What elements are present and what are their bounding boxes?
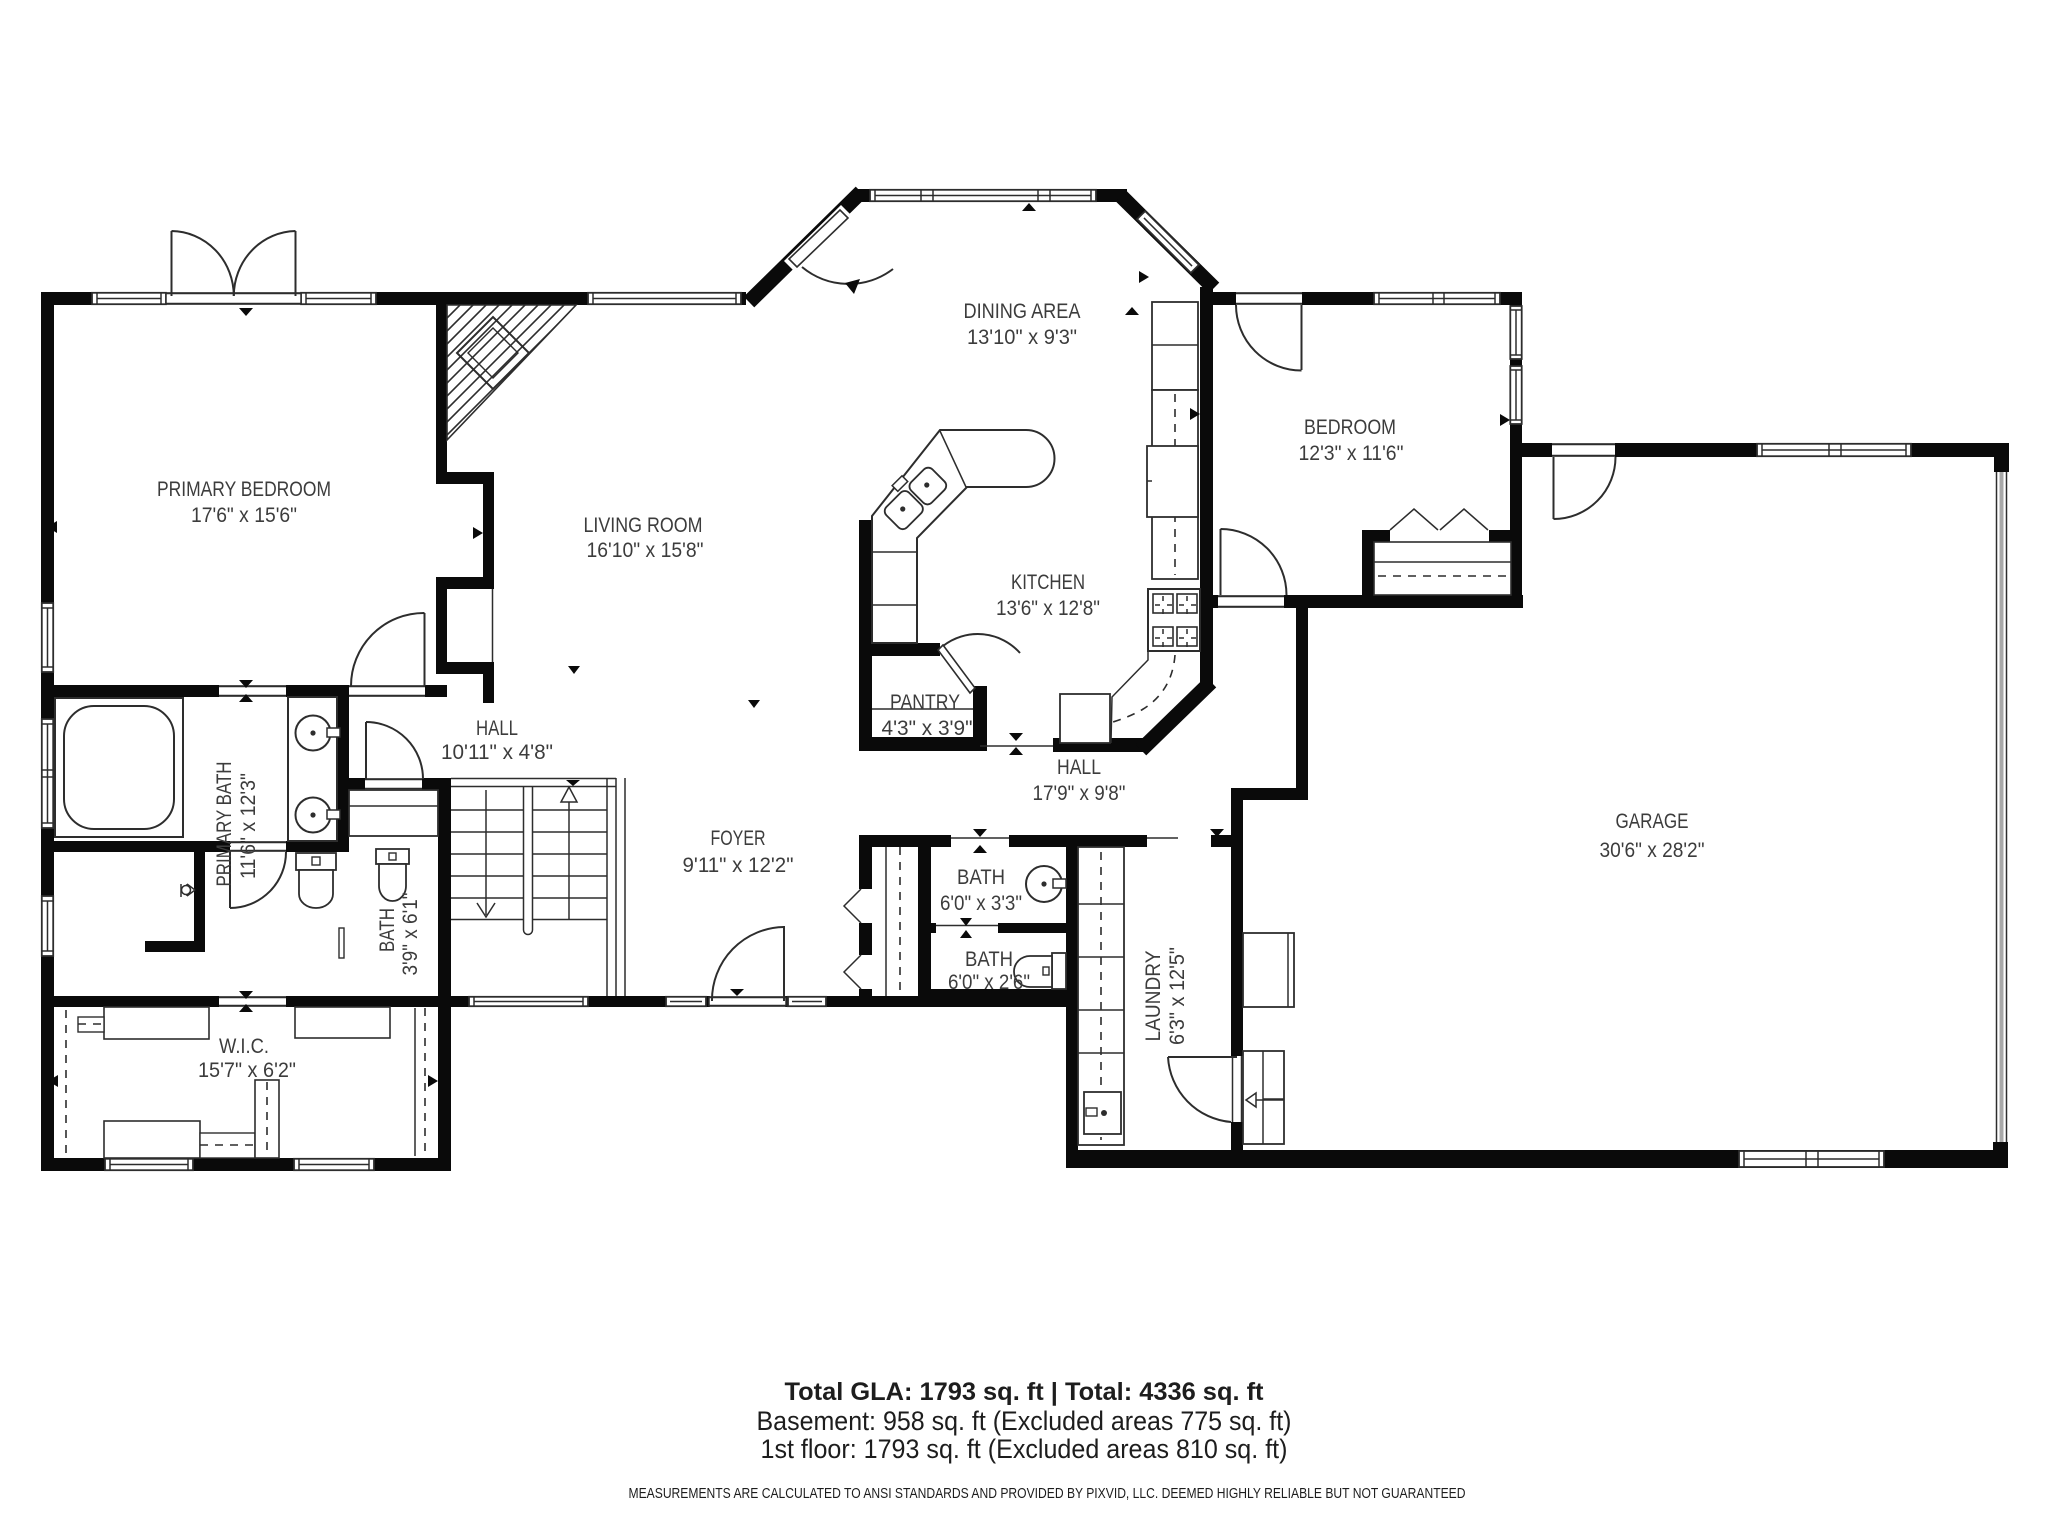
svg-text:BEDROOM: BEDROOM — [1304, 416, 1396, 439]
svg-text:3'9" x 6'1": 3'9" x 6'1" — [399, 893, 422, 976]
svg-text:LIVING ROOM: LIVING ROOM — [584, 514, 703, 537]
svg-text:6'3" x 12'5": 6'3" x 12'5" — [1166, 947, 1189, 1045]
svg-text:13'6" x 12'8": 13'6" x 12'8" — [996, 597, 1100, 620]
svg-text:1st floor: 1793 sq. ft (Exclud: 1st floor: 1793 sq. ft (Excluded areas 8… — [761, 1434, 1288, 1464]
svg-text:6'0" x 3'3": 6'0" x 3'3" — [940, 892, 1022, 915]
svg-text:PRIMARY BATH: PRIMARY BATH — [213, 762, 236, 887]
svg-text:BATH: BATH — [965, 948, 1013, 971]
svg-text:FOYER: FOYER — [711, 827, 766, 850]
svg-text:16'10" x 15'8": 16'10" x 15'8" — [587, 539, 704, 562]
svg-text:17'6" x 15'6": 17'6" x 15'6" — [191, 504, 297, 527]
svg-text:11'6" x 12'3": 11'6" x 12'3" — [237, 773, 260, 879]
svg-text:PANTRY: PANTRY — [890, 691, 960, 714]
svg-text:13'10" x 9'3": 13'10" x 9'3" — [967, 326, 1077, 349]
svg-text:PRIMARY BEDROOM: PRIMARY BEDROOM — [157, 478, 331, 501]
svg-text:HALL: HALL — [476, 717, 518, 740]
svg-text:4'3" x 3'9": 4'3" x 3'9" — [882, 717, 973, 740]
svg-text:GARAGE: GARAGE — [1616, 810, 1689, 833]
svg-text:W.I.C.: W.I.C. — [219, 1035, 269, 1058]
svg-text:9'11" x 12'2": 9'11" x 12'2" — [683, 854, 794, 877]
svg-text:30'6" x 28'2": 30'6" x 28'2" — [1600, 839, 1705, 862]
svg-text:BATH: BATH — [376, 908, 399, 952]
svg-text:LAUNDRY: LAUNDRY — [1142, 951, 1165, 1042]
svg-text:DINING AREA: DINING AREA — [964, 300, 1081, 323]
svg-text:HALL: HALL — [1057, 756, 1101, 779]
svg-text:Basement: 958 sq. ft (Excluded: Basement: 958 sq. ft (Excluded areas 775… — [757, 1406, 1292, 1436]
svg-text:Total GLA: 1793 sq. ft | Total: Total GLA: 1793 sq. ft | Total: 4336 sq.… — [785, 1378, 1265, 1406]
svg-text:6'0" x 2'6": 6'0" x 2'6" — [948, 971, 1030, 994]
svg-text:12'3" x 11'6": 12'3" x 11'6" — [1299, 442, 1404, 465]
svg-text:10'11" x 4'8": 10'11" x 4'8" — [441, 741, 553, 764]
svg-text:17'9" x 9'8": 17'9" x 9'8" — [1033, 782, 1126, 805]
svg-text:15'7" x 6'2": 15'7" x 6'2" — [198, 1059, 296, 1082]
svg-text:BATH: BATH — [957, 866, 1005, 889]
svg-text:KITCHEN: KITCHEN — [1011, 571, 1085, 594]
svg-text:MEASUREMENTS ARE CALCULATED TO: MEASUREMENTS ARE CALCULATED TO ANSI STAN… — [629, 1485, 1466, 1502]
